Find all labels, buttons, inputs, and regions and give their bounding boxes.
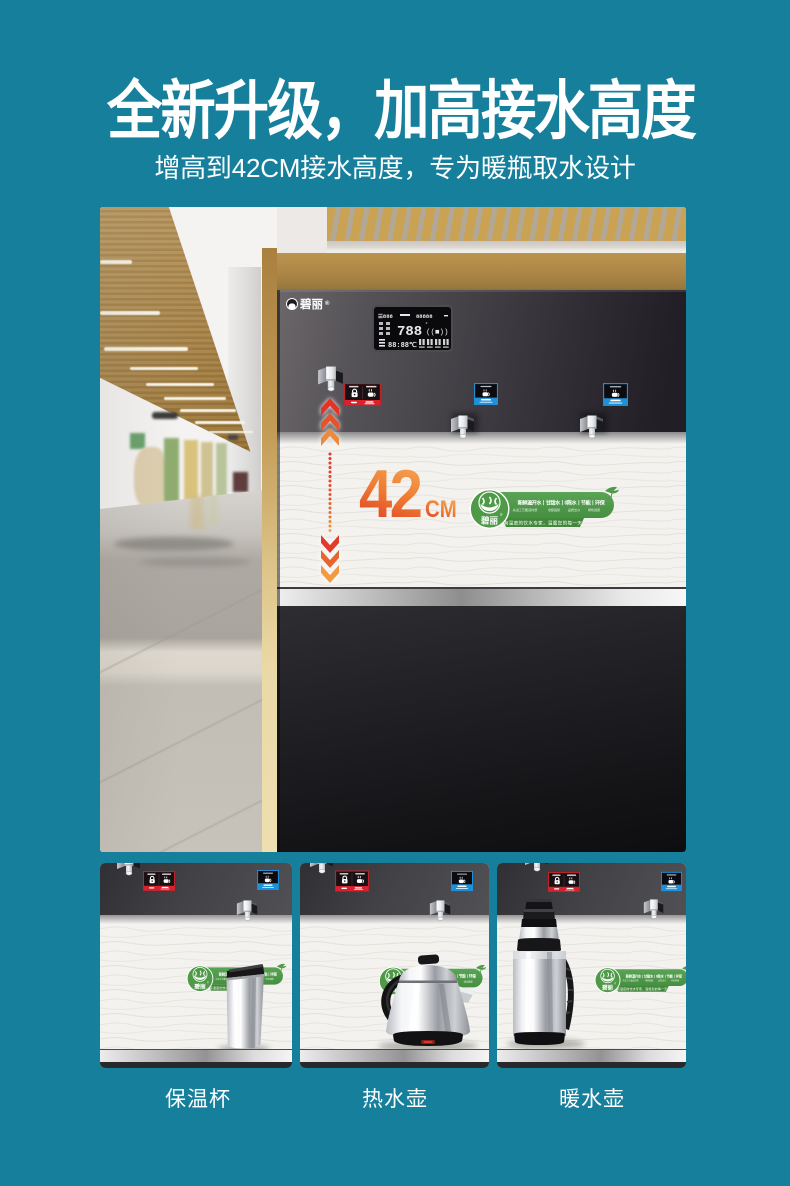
svg-text:☰888: ☰888: [378, 313, 394, 320]
svg-text:°: °: [425, 322, 428, 328]
svg-text:788: 788: [397, 324, 422, 340]
svg-text:88888: 88888: [416, 313, 433, 320]
svg-text:88:88℃: 88:88℃: [388, 341, 417, 350]
svg-text:((■)): ((■)): [426, 329, 449, 337]
